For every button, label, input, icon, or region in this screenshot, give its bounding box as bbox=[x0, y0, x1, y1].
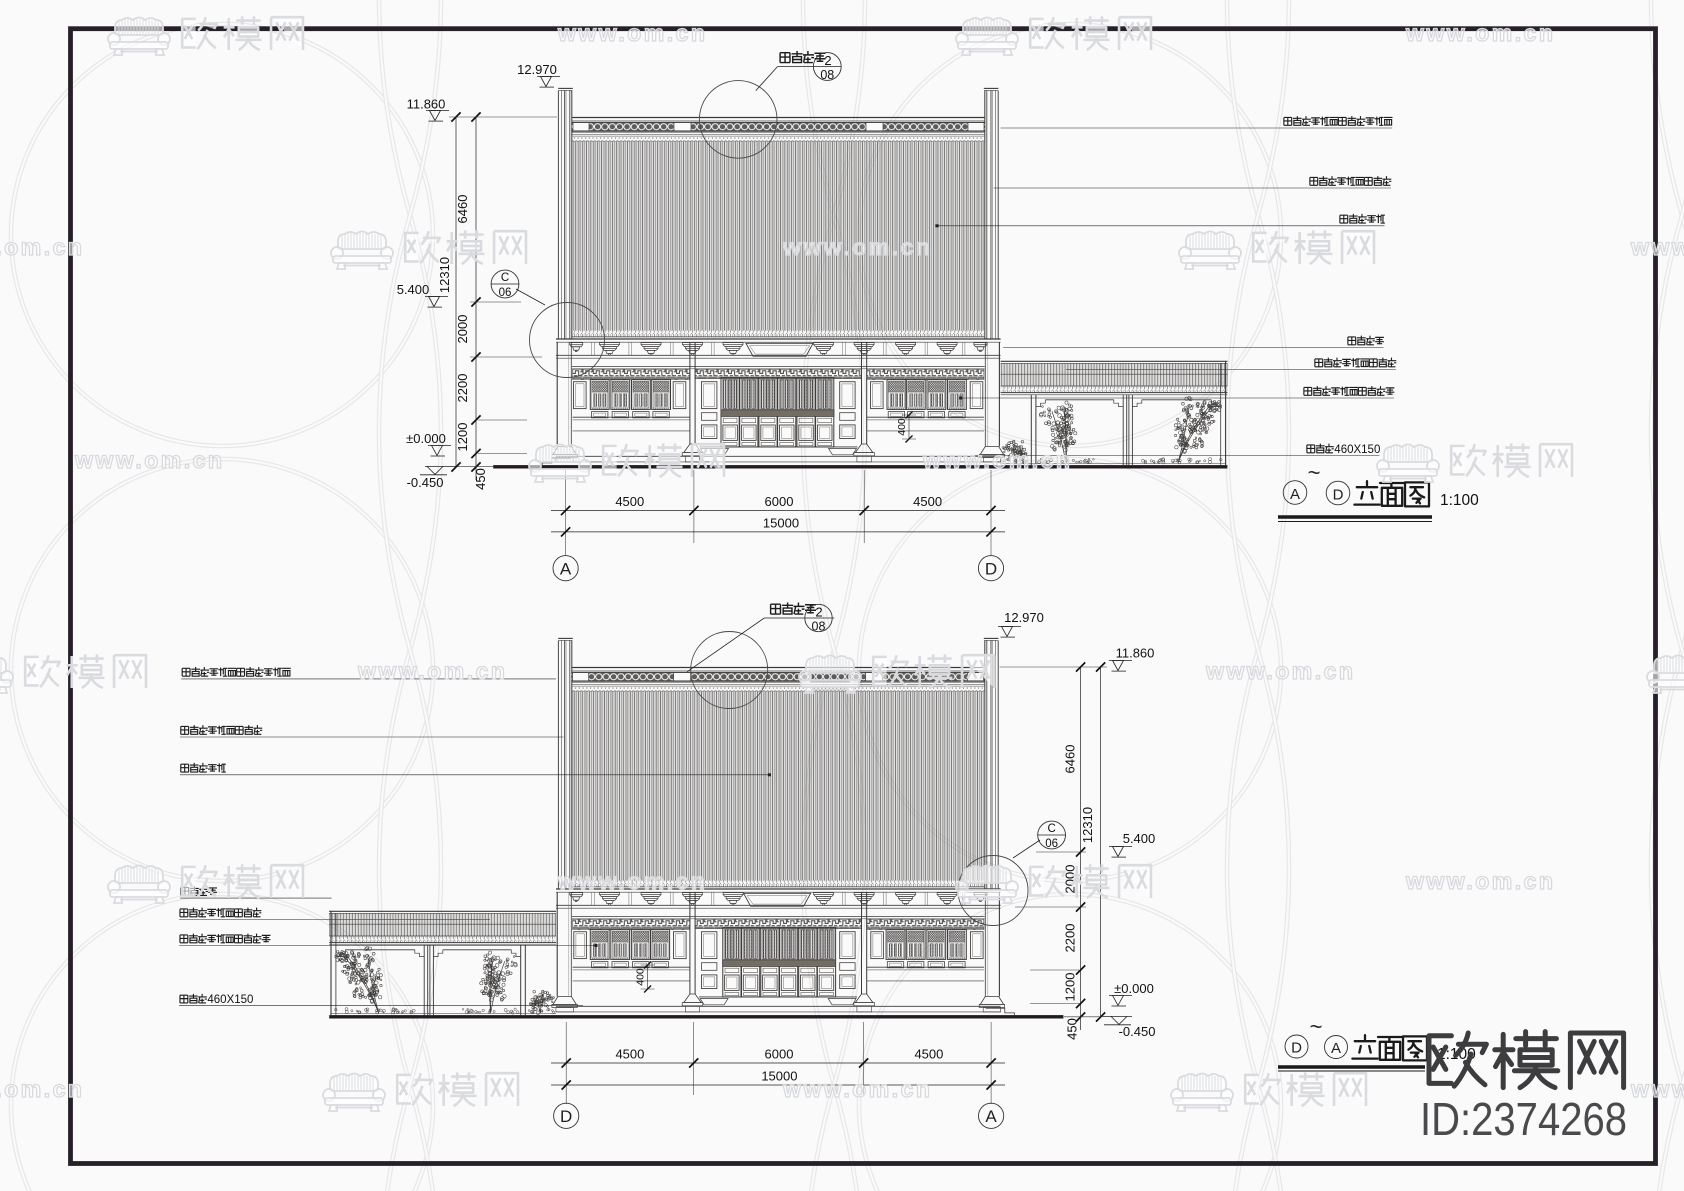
svg-text:450: 450 bbox=[473, 468, 488, 490]
svg-text:A: A bbox=[560, 560, 572, 579]
svg-text:06: 06 bbox=[499, 287, 512, 299]
svg-text:D: D bbox=[985, 560, 997, 579]
svg-text:6460: 6460 bbox=[1063, 745, 1078, 774]
svg-text:www.om.cn: www.om.cn bbox=[1630, 1076, 1684, 1102]
svg-text:6460: 6460 bbox=[455, 195, 470, 224]
svg-text:1:100: 1:100 bbox=[1440, 492, 1479, 509]
svg-text:2: 2 bbox=[824, 53, 831, 68]
svg-text:D: D bbox=[560, 1107, 572, 1126]
svg-text:2: 2 bbox=[815, 605, 822, 620]
svg-text:±0.000: ±0.000 bbox=[1114, 981, 1154, 996]
svg-text:1200: 1200 bbox=[455, 423, 470, 452]
svg-text:www.om.cn: www.om.cn bbox=[782, 1076, 932, 1102]
svg-text:www.om.cn: www.om.cn bbox=[1205, 658, 1355, 684]
svg-text:www.om.cn: www.om.cn bbox=[0, 1076, 84, 1102]
svg-text:www.om.cn: www.om.cn bbox=[922, 447, 1072, 473]
svg-text:15000: 15000 bbox=[763, 516, 799, 531]
svg-text:2200: 2200 bbox=[455, 374, 470, 403]
svg-text:4500: 4500 bbox=[615, 1047, 644, 1062]
svg-text:12310: 12310 bbox=[437, 257, 452, 293]
svg-text:2200: 2200 bbox=[1063, 924, 1078, 953]
svg-text:www.om.cn: www.om.cn bbox=[557, 868, 707, 894]
svg-text:www.om.cn: www.om.cn bbox=[1405, 868, 1555, 894]
svg-text:08: 08 bbox=[812, 620, 826, 634]
svg-text:www.om.cn: www.om.cn bbox=[782, 234, 932, 260]
svg-text:12310: 12310 bbox=[1080, 807, 1095, 843]
svg-text:A: A bbox=[1290, 486, 1300, 503]
svg-text:www.om.cn: www.om.cn bbox=[1405, 20, 1555, 46]
svg-text:www.om.cn: www.om.cn bbox=[0, 234, 84, 260]
svg-text:5.400: 5.400 bbox=[1123, 831, 1156, 846]
svg-text:12.970: 12.970 bbox=[517, 62, 557, 77]
svg-text:www.om.cn: www.om.cn bbox=[1630, 234, 1684, 260]
svg-text:C: C bbox=[1047, 823, 1055, 835]
svg-text:2000: 2000 bbox=[455, 315, 470, 344]
svg-text:C: C bbox=[501, 272, 509, 284]
svg-text:4500: 4500 bbox=[914, 1047, 943, 1062]
svg-text:A: A bbox=[985, 1107, 997, 1126]
svg-text:D: D bbox=[1291, 1040, 1302, 1057]
svg-text:400: 400 bbox=[635, 968, 647, 986]
svg-text:400: 400 bbox=[896, 418, 908, 436]
svg-text:12.970: 12.970 bbox=[1004, 610, 1044, 625]
svg-text:460X150: 460X150 bbox=[207, 994, 253, 1006]
svg-text:11.860: 11.860 bbox=[407, 97, 446, 112]
svg-text:~: ~ bbox=[1310, 1014, 1323, 1039]
svg-text:5.400: 5.400 bbox=[397, 282, 430, 297]
svg-text:11.860: 11.860 bbox=[1116, 646, 1155, 661]
svg-text:~: ~ bbox=[1308, 460, 1321, 485]
svg-text:www.om.cn: www.om.cn bbox=[557, 20, 707, 46]
svg-text:460X150: 460X150 bbox=[1334, 444, 1380, 456]
svg-text:6000: 6000 bbox=[765, 1047, 794, 1062]
svg-text:06: 06 bbox=[1045, 838, 1058, 850]
svg-text:4500: 4500 bbox=[913, 494, 942, 509]
svg-text:4500: 4500 bbox=[615, 494, 644, 509]
svg-text:450: 450 bbox=[1065, 1018, 1080, 1040]
svg-text:08: 08 bbox=[820, 68, 834, 82]
svg-text:www.om.cn: www.om.cn bbox=[357, 658, 507, 684]
svg-text:www.om.cn: www.om.cn bbox=[74, 447, 224, 473]
svg-text:ID:2374268: ID:2374268 bbox=[1420, 1093, 1627, 1145]
svg-text:A: A bbox=[1331, 1040, 1341, 1057]
svg-text:6000: 6000 bbox=[765, 494, 794, 509]
svg-text:±0.000: ±0.000 bbox=[406, 431, 446, 446]
svg-text:1200: 1200 bbox=[1063, 973, 1078, 1002]
svg-text:-0.450: -0.450 bbox=[407, 475, 444, 490]
svg-text:D: D bbox=[1333, 487, 1344, 504]
svg-text:-0.450: -0.450 bbox=[1119, 1024, 1156, 1039]
